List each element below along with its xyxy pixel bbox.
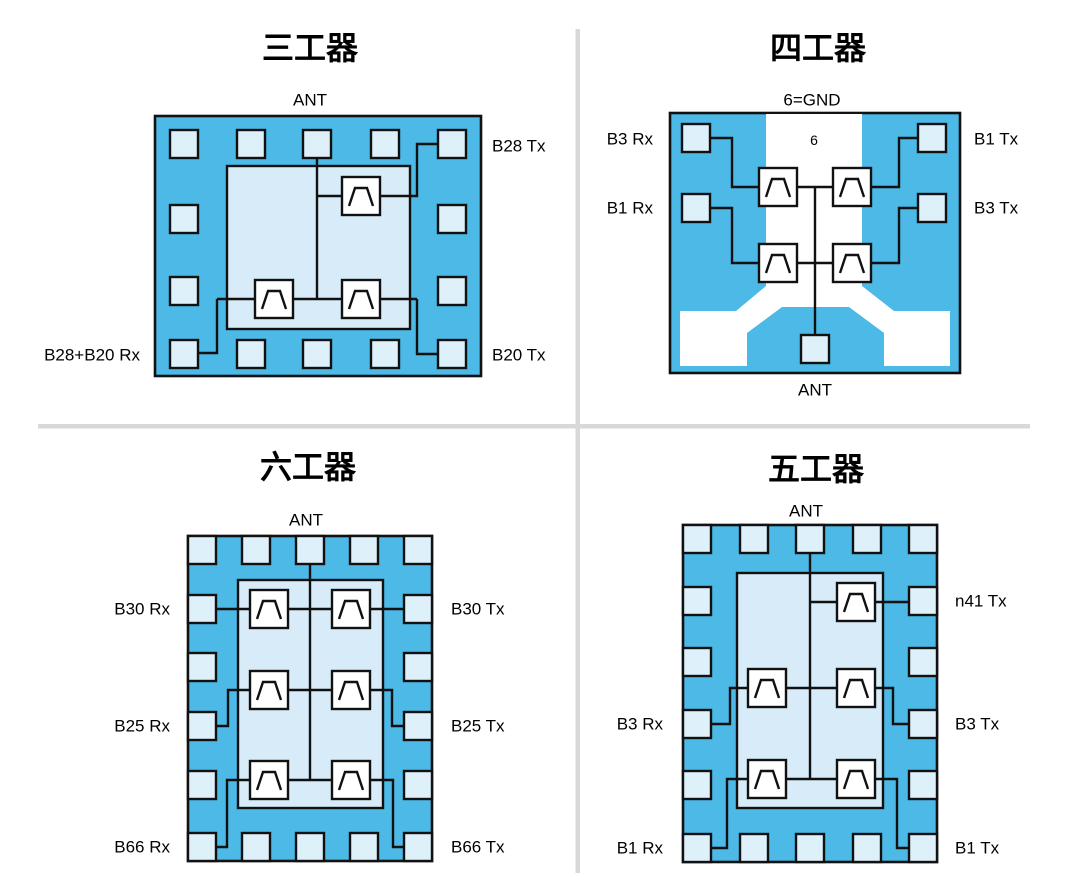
pad-b25-tx — [404, 712, 432, 740]
pad-b30-rx — [188, 595, 216, 623]
pad-ant — [796, 525, 824, 553]
triplexer-panel: 三工器 ANT B28 Tx B20 Tx B28+B20 Rx — [44, 30, 546, 376]
hexaplexer-panel: 六工器 ANT — [114, 449, 505, 861]
quadplexer-panel: 四工器 6=GND 6 ANT B3 Rx B1 Rx B1 Tx B3 Tx — [607, 30, 1019, 400]
triplexer-label-b28-tx: B28 Tx — [492, 137, 546, 156]
pad-b3-rx — [683, 710, 711, 738]
pad — [909, 648, 937, 676]
pad-b3-rx — [682, 124, 710, 152]
hexaplexer-label-b66-tx: B66 Tx — [451, 838, 505, 857]
pentaplexer-label-b1-rx: B1 Rx — [617, 839, 664, 858]
quadplexer-gnd-label: 6=GND — [783, 91, 840, 110]
pad-b20-tx — [438, 340, 466, 368]
pad-ant — [296, 536, 324, 564]
pad — [188, 536, 216, 564]
bandpass-filter-icon — [837, 669, 875, 707]
pad-b28-tx — [438, 130, 466, 158]
multiplexer-diagram: 三工器 ANT B28 Tx B20 Tx B28+B20 Rx — [0, 0, 1075, 875]
bandpass-filter-icon — [833, 244, 871, 282]
pad — [237, 130, 265, 158]
bandpass-filter-icon — [833, 168, 871, 206]
bandpass-filter-icon — [332, 590, 370, 628]
pad — [170, 205, 198, 233]
pentaplexer-title: 五工器 — [768, 451, 865, 487]
pentaplexer-label-b3-tx: B3 Tx — [955, 715, 1000, 734]
pad — [371, 130, 399, 158]
bandpass-filter-icon — [759, 244, 797, 282]
triplexer-ant-label: ANT — [293, 91, 327, 110]
pad — [404, 536, 432, 564]
pad-b1-tx — [909, 834, 937, 862]
hexaplexer-label-b66-rx: B66 Rx — [114, 838, 170, 857]
pad — [371, 340, 399, 368]
pad-b28-b20-rx — [170, 340, 198, 368]
pad — [188, 653, 216, 681]
pad — [404, 653, 432, 681]
bandpass-filter-icon — [250, 671, 288, 709]
bandpass-filter-icon — [332, 671, 370, 709]
pad — [188, 771, 216, 799]
pad — [909, 771, 937, 799]
pad — [296, 833, 324, 861]
pad — [170, 130, 198, 158]
pad-b3-tx — [909, 710, 937, 738]
pad — [853, 834, 881, 862]
pad — [740, 525, 768, 553]
hexaplexer-label-b25-rx: B25 Rx — [114, 717, 170, 736]
pad — [683, 525, 711, 553]
quadplexer-label-b3-rx: B3 Rx — [607, 130, 654, 149]
pad-b30-tx — [404, 595, 432, 623]
pad — [796, 834, 824, 862]
hexaplexer-label-b25-tx: B25 Tx — [451, 717, 505, 736]
pad — [350, 536, 378, 564]
pad — [683, 648, 711, 676]
hexaplexer-label-b30-rx: B30 Rx — [114, 600, 170, 619]
pad — [242, 833, 270, 861]
quadrant-divider-horizontal — [38, 424, 1030, 429]
bandpass-filter-icon — [837, 760, 875, 798]
pentaplexer-label-b3-rx: B3 Rx — [617, 715, 664, 734]
pentaplexer-ant-label: ANT — [789, 502, 823, 521]
pad-b66-rx — [188, 833, 216, 861]
triplexer-label-b20-tx: B20 Tx — [492, 346, 546, 365]
pentaplexer-panel: 五工器 ANT — [617, 451, 1007, 862]
pad — [350, 833, 378, 861]
bandpass-filter-icon — [250, 590, 288, 628]
quadplexer-label-b3-tx: B3 Tx — [974, 199, 1019, 218]
pad — [170, 277, 198, 305]
bandpass-filter-icon — [332, 761, 370, 799]
pentaplexer-label-n41-tx: n41 Tx — [955, 592, 1007, 611]
quadplexer-title: 四工器 — [770, 30, 867, 66]
bandpass-filter-icon — [250, 761, 288, 799]
quadplexer-gnd-pin: 6 — [810, 132, 818, 148]
pad-b66-tx — [404, 833, 432, 861]
pad — [303, 340, 331, 368]
pad — [438, 205, 466, 233]
bandpass-filter-icon — [748, 760, 786, 798]
pad-b3-tx — [918, 194, 946, 222]
pad — [683, 771, 711, 799]
quadplexer-label-b1-tx: B1 Tx — [974, 130, 1019, 149]
pad — [237, 340, 265, 368]
pad — [242, 536, 270, 564]
bandpass-filter-icon — [748, 669, 786, 707]
pad-ant — [801, 335, 829, 363]
hexaplexer-title: 六工器 — [260, 449, 357, 485]
triplexer-label-b28-b20-rx: B28+B20 Rx — [44, 346, 140, 365]
hexaplexer-label-b30-tx: B30 Tx — [451, 600, 505, 619]
diagram-canvas: 三工器 ANT B28 Tx B20 Tx B28+B20 Rx — [0, 0, 1075, 875]
pad-n41-tx — [909, 587, 937, 615]
bandpass-filter-icon — [255, 280, 293, 318]
pad — [909, 525, 937, 553]
bandpass-filter-icon — [342, 177, 380, 215]
quadrant-divider-vertical — [576, 29, 581, 873]
pad — [438, 277, 466, 305]
pad — [404, 771, 432, 799]
quadplexer-label-b1-rx: B1 Rx — [607, 199, 654, 218]
pad-b1-rx — [683, 834, 711, 862]
bandpass-filter-icon — [837, 583, 875, 621]
bandpass-filter-icon — [342, 280, 380, 318]
triplexer-title: 三工器 — [262, 30, 359, 66]
pentaplexer-label-b1-tx: B1 Tx — [955, 839, 1000, 858]
pad-b1-tx — [918, 124, 946, 152]
pad-ant — [303, 130, 331, 158]
bandpass-filter-icon — [759, 168, 797, 206]
quadplexer-ant-label: ANT — [798, 381, 832, 400]
pad — [853, 525, 881, 553]
pad — [740, 834, 768, 862]
pad — [683, 587, 711, 615]
hexaplexer-ant-label: ANT — [289, 511, 323, 530]
pad-b1-rx — [682, 194, 710, 222]
pad-b25-rx — [188, 712, 216, 740]
